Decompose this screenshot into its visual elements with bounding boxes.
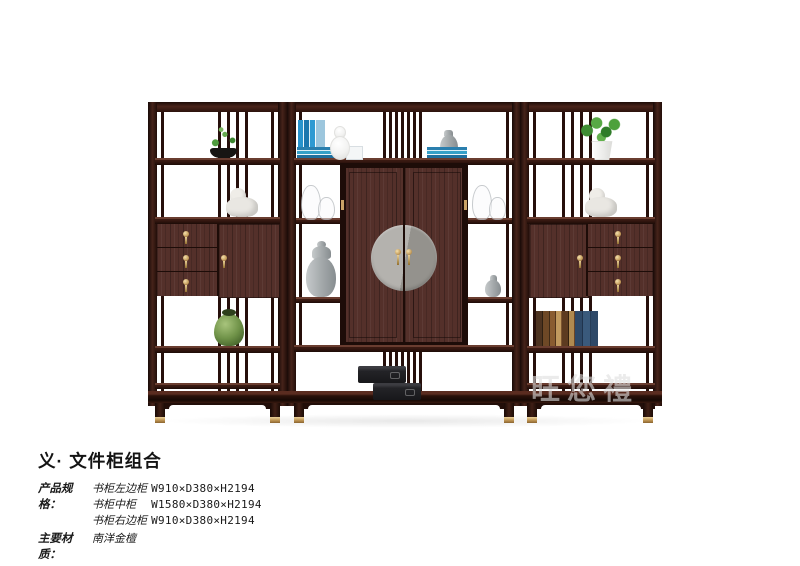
- niche-shelf: [296, 218, 341, 224]
- stacked-books: [427, 147, 467, 158]
- brass-drop: [185, 237, 187, 244]
- brass-drop: [617, 285, 619, 292]
- spec-lines: 书柜左边柜 W910×D380×H2194 书柜中柜 W1580×D380×H2…: [92, 481, 262, 529]
- leather-books-row: [536, 311, 598, 346]
- brass-drop: [617, 237, 619, 244]
- niche-shelf: [296, 297, 341, 303]
- brass-drop: [223, 261, 225, 268]
- brass-drop: [397, 255, 399, 265]
- spec-item-name: 书柜右边柜: [92, 513, 148, 529]
- spec-item-size: W1580×D380×H2194: [151, 498, 262, 511]
- spec-item-name: 书柜中柜: [92, 497, 148, 513]
- spec-section: 产品规格： 书柜左边柜 W910×D380×H2194 书柜中柜 W1580×D…: [38, 481, 262, 529]
- box-emblem: [390, 372, 400, 379]
- plant-foliage: [575, 114, 623, 144]
- green-porcelain-vase: [214, 314, 244, 346]
- cabinet-door: [218, 224, 280, 298]
- brass-drop: [185, 285, 187, 292]
- brass-foot: [504, 417, 514, 423]
- product-title: 义· 文件柜组合: [38, 448, 262, 473]
- leg: [504, 403, 514, 418]
- brand-watermark: 旺您禮: [531, 366, 639, 408]
- material-section: 主要材质： 南洋金檀: [38, 531, 262, 563]
- brass-foot: [643, 417, 653, 423]
- material-label: 主要材质：: [38, 531, 92, 563]
- cabinet-edge: [462, 163, 468, 347]
- brass-foot: [527, 417, 537, 423]
- bonsai-foliage: [204, 126, 242, 150]
- spec-item-size: W910×D380×H2194: [151, 482, 255, 495]
- drawer-divider: [157, 271, 218, 272]
- bottom-deck: [148, 391, 287, 403]
- side-stile: [287, 102, 296, 406]
- leg: [270, 403, 280, 418]
- green-vase-mouth: [222, 309, 236, 316]
- top-beam: [148, 102, 287, 112]
- leg: [294, 403, 304, 418]
- shelf: [527, 217, 655, 224]
- drawer-divider: [587, 247, 653, 248]
- niche-shelf: [467, 218, 512, 224]
- lion-figurine-body: [226, 197, 258, 217]
- apron-cutout: [308, 405, 500, 411]
- brass-foot: [294, 417, 304, 423]
- spec-label: 产品规格：: [38, 481, 92, 513]
- box-emblem: [405, 389, 415, 396]
- shelf: [294, 345, 514, 352]
- brass-drop: [408, 255, 410, 265]
- niche-shelf: [467, 297, 512, 303]
- glass-jar: [318, 197, 335, 220]
- side-stile: [520, 102, 529, 406]
- cabinet-edge: [340, 163, 346, 347]
- brass-drop: [185, 261, 187, 268]
- side-stile: [148, 102, 157, 406]
- spec-line: 书柜中柜 W1580×D380×H2194: [92, 497, 262, 513]
- door-gap: [586, 224, 588, 296]
- shelf: [527, 346, 655, 353]
- material-value: 南洋金檀: [92, 531, 136, 547]
- drawer-divider: [157, 247, 218, 248]
- spec-line: 书柜右边柜 W910×D380×H2194: [92, 513, 262, 529]
- inner-post: [506, 112, 509, 345]
- lion-figurine-body: [585, 197, 617, 217]
- door-gap: [217, 224, 219, 296]
- door-gap: [403, 163, 405, 347]
- slat-group: [383, 112, 425, 158]
- floor-shadow: [158, 414, 652, 428]
- top-beam: [520, 102, 662, 112]
- shelf: [155, 383, 280, 389]
- glass-jar: [489, 197, 506, 220]
- spec-item-size: W910×D380×H2194: [151, 514, 255, 527]
- shelf: [155, 217, 280, 224]
- side-stile: [653, 102, 662, 406]
- brass-foot: [270, 417, 280, 423]
- small-jar: [485, 280, 501, 297]
- shelf: [155, 346, 280, 353]
- ginger-jar-body: [306, 257, 336, 297]
- top-beam: [287, 102, 520, 112]
- shelf: [527, 158, 655, 165]
- leg: [643, 403, 653, 418]
- leg: [155, 403, 165, 418]
- spec-item-name: 书柜左边柜: [92, 481, 148, 497]
- brass-drop: [617, 261, 619, 268]
- apron-cutout: [169, 405, 266, 411]
- shelf: [155, 158, 280, 165]
- brass-drop: [579, 261, 581, 268]
- drawer-divider: [587, 271, 653, 272]
- white-gourd-vase-body: [330, 136, 350, 160]
- brass-hinge: [341, 200, 344, 210]
- product-info: 义· 文件柜组合 产品规格： 书柜左边柜 W910×D380×H2194 书柜中…: [38, 448, 262, 565]
- brass-foot: [155, 417, 165, 423]
- brass-hinge: [464, 200, 467, 210]
- spec-line: 书柜左边柜 W910×D380×H2194: [92, 481, 262, 497]
